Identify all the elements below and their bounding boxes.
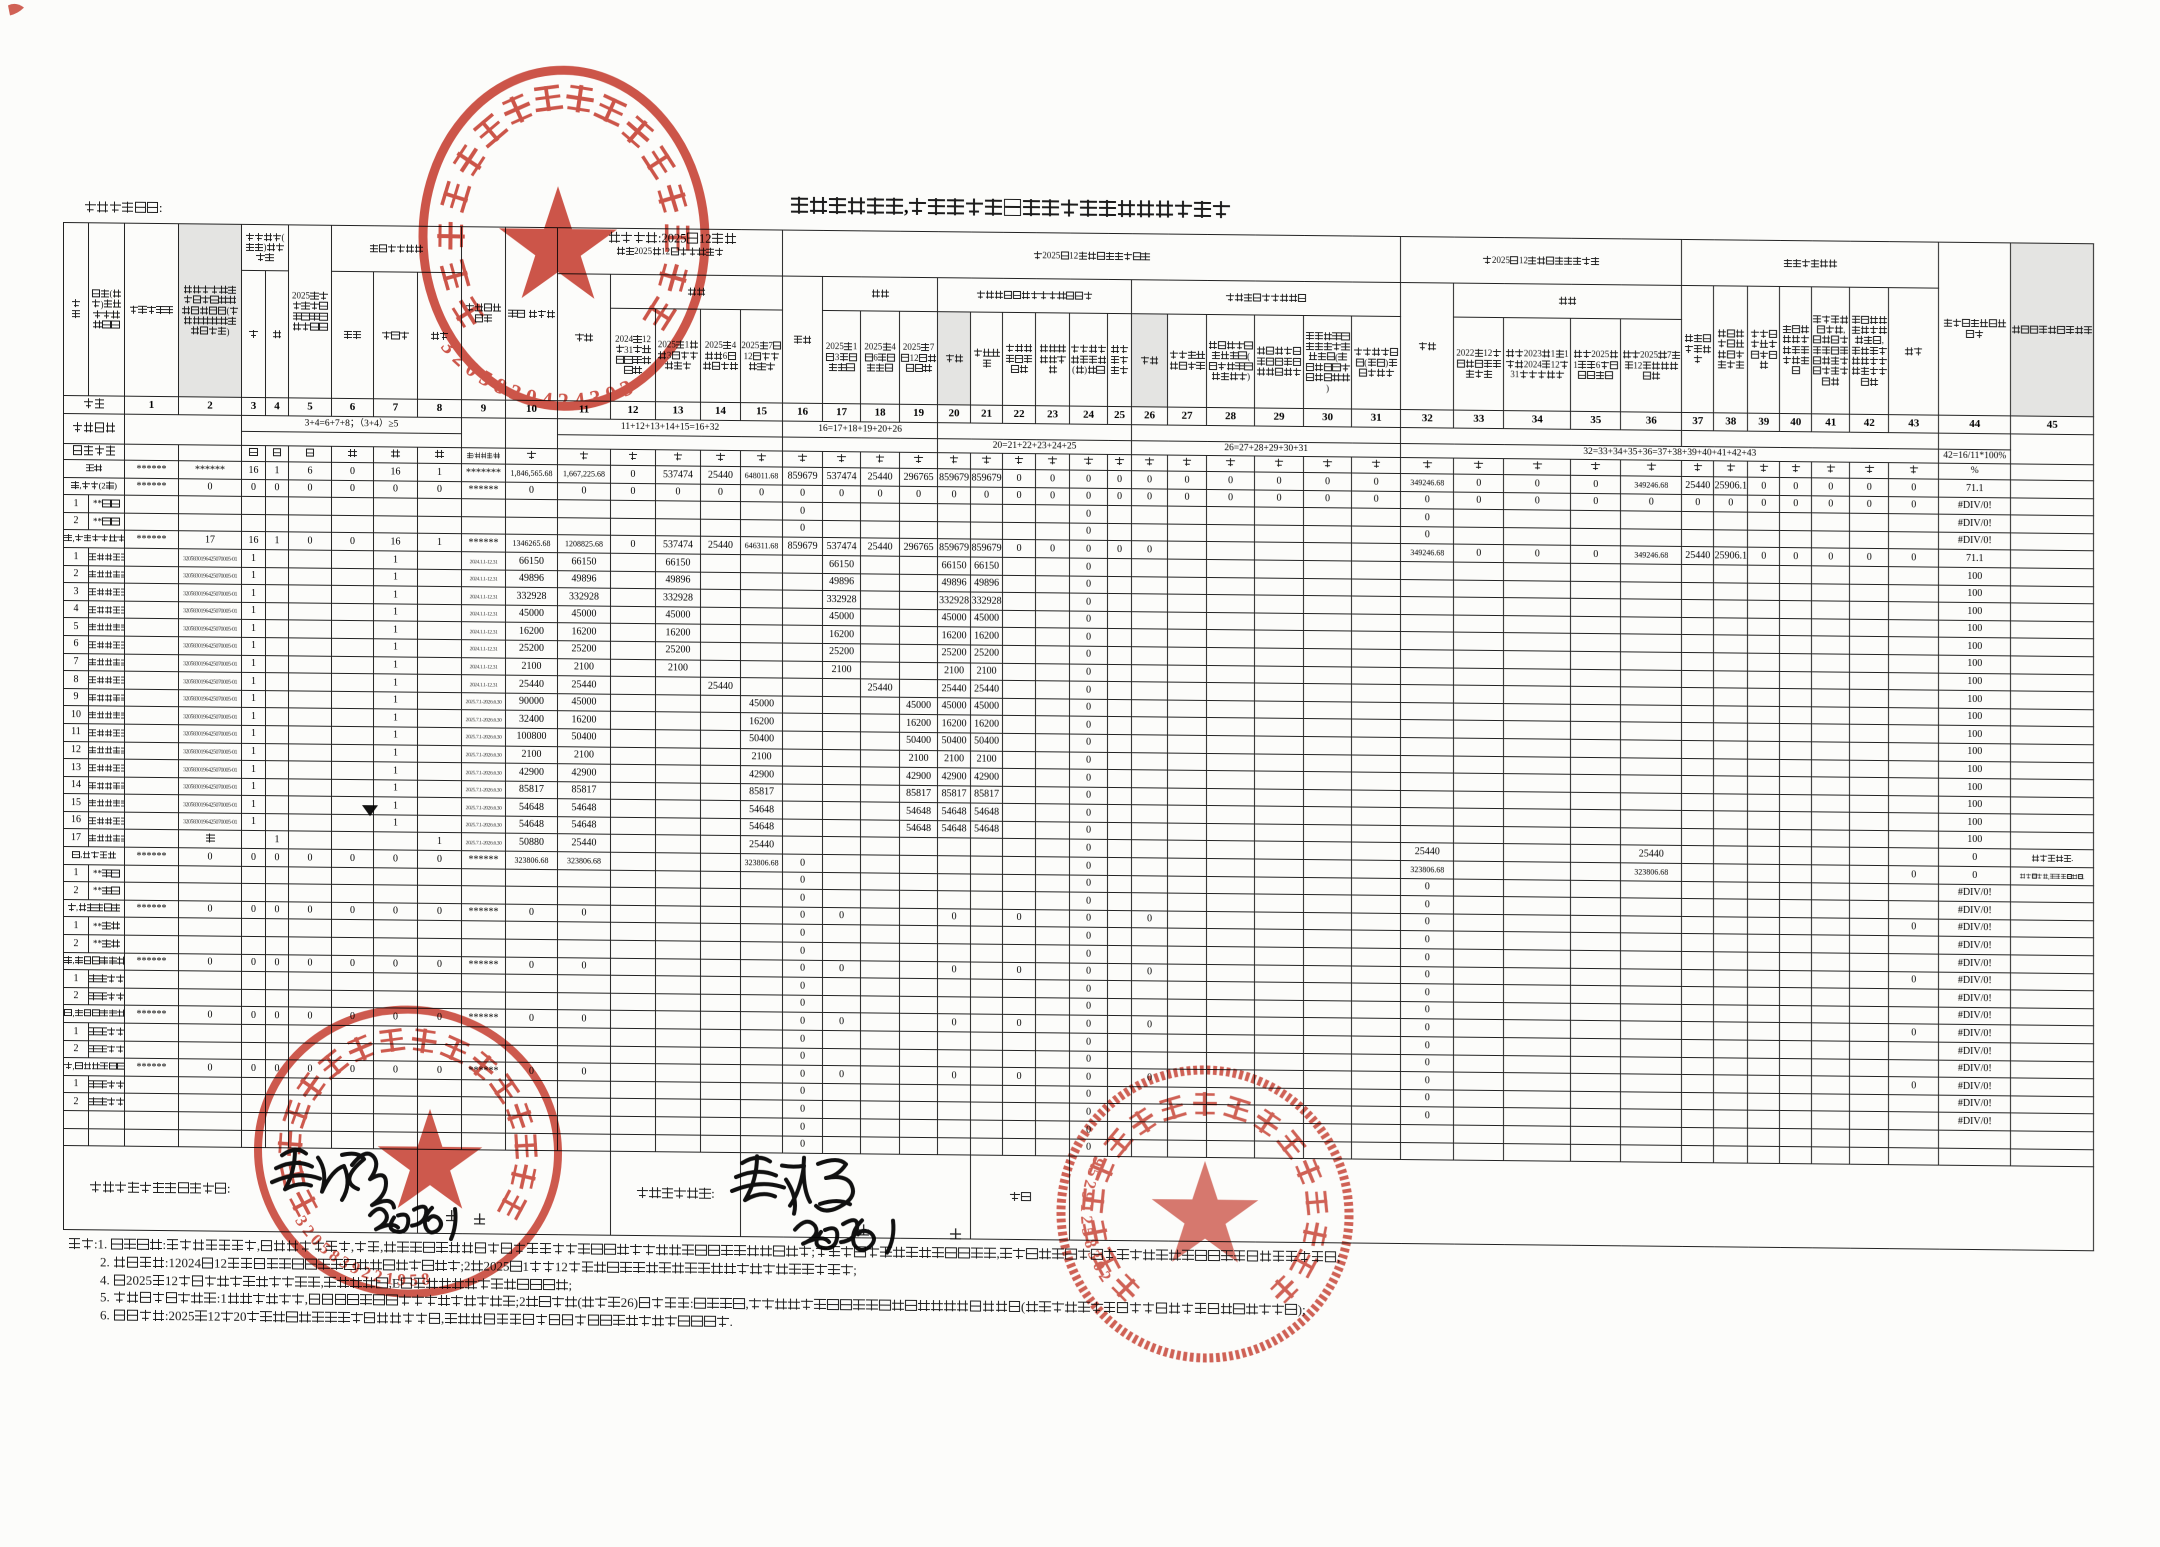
svg-text:3205830424303: 3205830424303: [436, 334, 642, 414]
